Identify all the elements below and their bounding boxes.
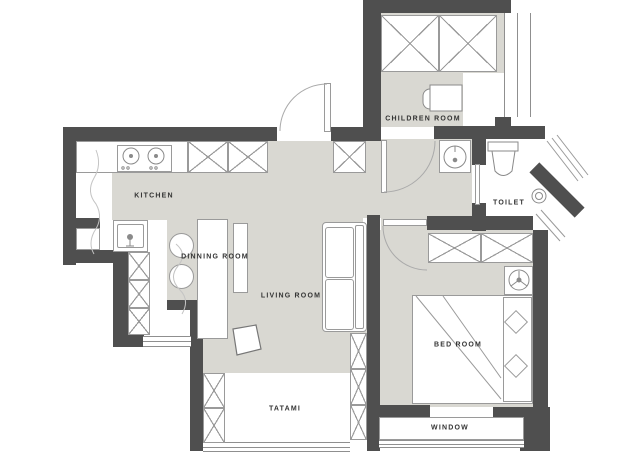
children-door-leaf bbox=[381, 140, 387, 193]
wall-toilet-left-top bbox=[472, 139, 486, 165]
wall-toilet-top bbox=[472, 126, 545, 139]
toilet-sliding-door bbox=[475, 164, 480, 205]
fridge-cabinet-3 bbox=[128, 308, 150, 335]
bedroom-wardrobe-1 bbox=[428, 233, 481, 263]
wall-niche-top bbox=[63, 218, 100, 228]
kitchen-cabinet-2 bbox=[228, 141, 268, 173]
bed-pillow-column bbox=[503, 297, 532, 402]
children-room-window bbox=[504, 13, 531, 117]
sofa-cushion-2 bbox=[325, 279, 354, 330]
wall-left-outer bbox=[63, 127, 76, 265]
fridge-cabinet-1 bbox=[128, 252, 150, 280]
bedroom-door-leaf bbox=[383, 219, 427, 226]
wall-chamfer-diagonal bbox=[529, 162, 584, 217]
wall-bay-corner bbox=[520, 407, 550, 451]
entry-door-arc bbox=[280, 84, 327, 131]
entry-shoe-cabinet bbox=[333, 141, 366, 173]
toilet-icon bbox=[488, 142, 518, 176]
living-label: LIVING ROOM bbox=[261, 293, 321, 300]
tatami-cabinet-right-2 bbox=[350, 369, 367, 405]
wall-children-top bbox=[363, 0, 511, 13]
wall-niche-bottom bbox=[63, 250, 117, 263]
fridge-cabinet-2 bbox=[128, 280, 150, 308]
tatami-window bbox=[203, 442, 350, 452]
floor-plan: KITCHEN DINNING ROOM LIVING ROOM CHILDRE… bbox=[0, 0, 640, 459]
kitchen-small-window bbox=[143, 336, 191, 347]
wall-kitchen-step-v bbox=[113, 250, 128, 337]
toilet-label: TOILET bbox=[493, 200, 525, 207]
tatami-cabinet-right-3 bbox=[350, 405, 367, 440]
wall-kitchen-step-h bbox=[113, 335, 144, 347]
dining-chair-2 bbox=[169, 264, 194, 289]
tatami-cabinet-left-1 bbox=[203, 373, 225, 408]
wall-top-left bbox=[63, 127, 277, 141]
kitchen-label: KITCHEN bbox=[134, 193, 174, 200]
bedroom-wardrobe-2 bbox=[481, 233, 533, 263]
wall-toilet-left-bottom bbox=[472, 203, 486, 231]
wall-children-left bbox=[363, 0, 381, 141]
children-wardrobe-1 bbox=[381, 15, 439, 72]
washing-machine bbox=[439, 140, 471, 173]
bay-window-glass bbox=[379, 440, 524, 448]
kitchen-sink-basin bbox=[117, 224, 144, 248]
dining-label: DINNING ROOM bbox=[181, 254, 249, 261]
entry-door-leaf bbox=[324, 83, 331, 132]
kitchen-white-strip bbox=[150, 220, 167, 335]
wall-entry-right bbox=[331, 127, 365, 141]
bedroom-label: BED ROOM bbox=[434, 342, 482, 349]
tatami-cabinet-right-1 bbox=[350, 333, 367, 369]
kitchen-cabinet-1 bbox=[188, 141, 228, 173]
sofa-back bbox=[355, 225, 364, 329]
children-label: CHILDREN ROOM bbox=[385, 116, 461, 123]
wall-bedroom-right bbox=[533, 230, 548, 407]
tatami-cabinet-left-2 bbox=[203, 408, 225, 443]
wall-niche-box bbox=[76, 228, 100, 250]
dining-table bbox=[197, 219, 228, 339]
wall-children-bottom bbox=[434, 126, 472, 139]
stove bbox=[117, 145, 172, 172]
children-wardrobe-2 bbox=[439, 15, 497, 72]
window-label: WINDOW bbox=[431, 425, 469, 432]
ac-fan-unit bbox=[504, 266, 533, 295]
toilet-basin-icon bbox=[532, 189, 546, 203]
sofa-cushion-1 bbox=[325, 227, 354, 278]
tatami-label: TATAMI bbox=[269, 406, 301, 413]
